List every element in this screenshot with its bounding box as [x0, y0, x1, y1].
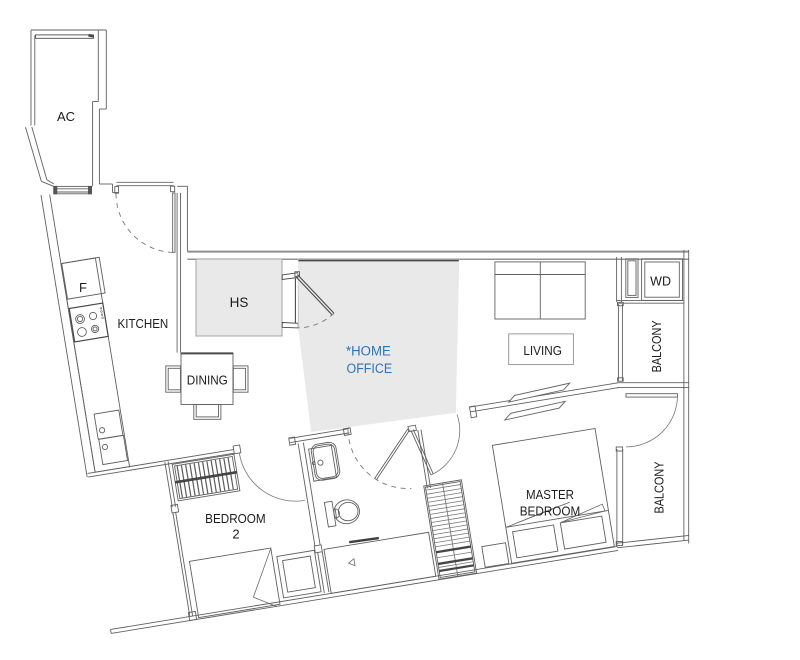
- svg-text:BALCONY: BALCONY: [651, 461, 666, 513]
- svg-text:WD: WD: [650, 275, 671, 289]
- svg-text:BEDROOM: BEDROOM: [520, 504, 581, 519]
- svg-text:LIVING: LIVING: [523, 343, 562, 358]
- svg-text:F: F: [79, 280, 87, 295]
- svg-text:DINING: DINING: [187, 372, 228, 387]
- svg-text:*HOME: *HOME: [346, 344, 391, 359]
- svg-text:BALCONY: BALCONY: [649, 320, 664, 372]
- svg-text:BEDROOM: BEDROOM: [205, 511, 266, 526]
- svg-text:MASTER: MASTER: [526, 487, 574, 502]
- svg-text:AC: AC: [57, 109, 75, 124]
- svg-text:2: 2: [232, 527, 239, 542]
- svg-text:KITCHEN: KITCHEN: [118, 316, 169, 331]
- svg-text:OFFICE: OFFICE: [347, 361, 393, 376]
- svg-text:HS: HS: [230, 295, 249, 310]
